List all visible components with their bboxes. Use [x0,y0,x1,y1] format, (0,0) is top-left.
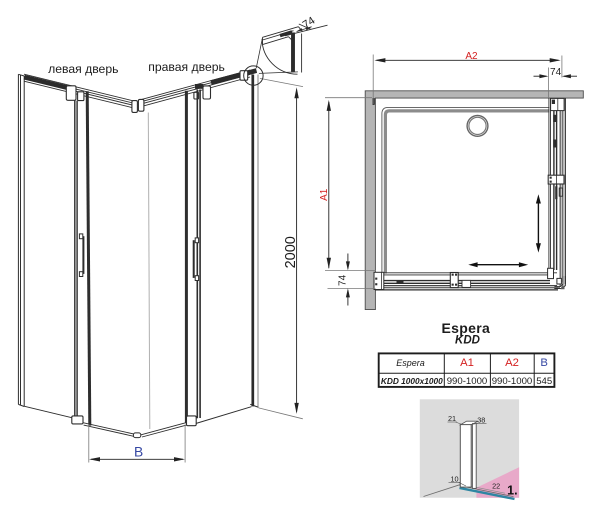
svg-text:990-1000: 990-1000 [492,376,533,387]
svg-text:KDD: KDD [455,335,480,347]
svg-text:KDD 1000x1000: KDD 1000x1000 [381,376,443,386]
svg-text:74: 74 [338,274,349,286]
svg-text:2000: 2000 [283,236,299,268]
svg-text:21: 21 [448,414,456,423]
svg-text:38: 38 [477,415,485,424]
svg-text:левая дверь: левая дверь [48,62,118,76]
svg-text:A1: A1 [319,188,330,201]
svg-text:10: 10 [450,474,458,483]
svg-text:Espera: Espera [396,358,425,368]
svg-text:B: B [134,445,143,460]
svg-text:74: 74 [550,67,562,78]
svg-text:545: 545 [536,376,552,387]
svg-text:B: B [540,357,548,369]
svg-text:A2: A2 [465,51,478,62]
svg-text:A1: A1 [460,357,474,369]
svg-text:A2: A2 [505,357,519,369]
svg-text:1.: 1. [507,484,517,498]
svg-text:990-1000: 990-1000 [447,376,488,387]
svg-text:22: 22 [492,481,500,490]
svg-text:правая дверь: правая дверь [148,60,225,74]
